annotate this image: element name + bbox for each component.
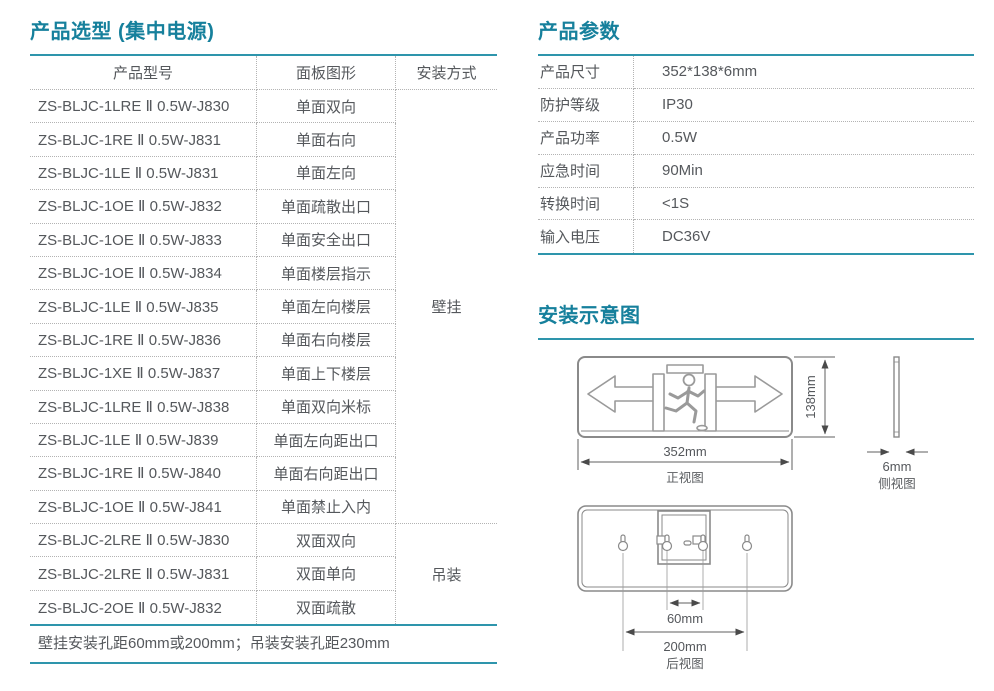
model-cell: ZS-BLJC-1OE Ⅱ 0.5W-J841 [30, 491, 257, 524]
side-view-drawing [867, 357, 928, 452]
model-cell: ZS-BLJC-1OE Ⅱ 0.5W-J833 [30, 224, 257, 257]
front-view-label: 正视图 [666, 470, 704, 485]
panel-cell: 单面禁止入内 [257, 491, 396, 524]
model-cell: ZS-BLJC-2LRE Ⅱ 0.5W-J831 [30, 557, 257, 590]
mount-cell: 壁挂 [396, 90, 497, 524]
panel-cell: 单面右向 [257, 123, 396, 156]
datasheet-page: 产品选型 (集中电源) 产品型号 面板图形 安装方式 ZS-BLJC-1LRE … [0, 0, 994, 687]
product-selection-section: 产品选型 (集中电源) 产品型号 面板图形 安装方式 ZS-BLJC-1LRE … [30, 20, 497, 664]
model-cell: ZS-BLJC-1LE Ⅱ 0.5W-J831 [30, 157, 257, 190]
model-cell: ZS-BLJC-1RE Ⅱ 0.5W-J831 [30, 123, 257, 156]
model-cell: ZS-BLJC-1LRE Ⅱ 0.5W-J838 [30, 391, 257, 424]
right-column: 产品参数 产品尺寸352*138*6mm防护等级IP30产品功率0.5W应急时间… [538, 20, 974, 691]
front-view-drawing [578, 357, 792, 437]
rear-view-label: 后视图 [666, 656, 704, 671]
panel-cell: 双面单向 [257, 557, 396, 590]
model-cell: ZS-BLJC-1LE Ⅱ 0.5W-J839 [30, 424, 257, 457]
mount-cell: 吊装 [396, 524, 497, 624]
model-cell: ZS-BLJC-2LRE Ⅱ 0.5W-J830 [30, 524, 257, 557]
selection-table: 产品型号 面板图形 安装方式 ZS-BLJC-1LRE Ⅱ 0.5W-J830单… [30, 56, 497, 624]
panel-cell: 单面右向距出口 [257, 457, 396, 490]
model-cell: ZS-BLJC-1OE Ⅱ 0.5W-J832 [30, 190, 257, 223]
parameters-title: 产品参数 [538, 20, 974, 45]
rear-outer-pitch-dim: 200mm [663, 639, 706, 654]
param-label: 防护等级 [538, 89, 634, 122]
param-value: DC36V [634, 220, 974, 253]
front-height-dim: 138mm [803, 376, 818, 419]
param-value: IP30 [634, 89, 974, 122]
panel-cell: 双面双向 [257, 524, 396, 557]
param-label: 产品尺寸 [538, 56, 634, 89]
rear-inner-pitch-dim: 60mm [667, 611, 703, 626]
model-cell: ZS-BLJC-1LRE Ⅱ 0.5W-J830 [30, 90, 257, 123]
param-value: <1S [634, 188, 974, 221]
selection-footnote: 壁挂安装孔距60mm或200mm；吊装安装孔距230mm [30, 624, 497, 664]
param-label: 输入电压 [538, 220, 634, 253]
param-value: 0.5W [634, 122, 974, 155]
column-header-mount: 安装方式 [396, 56, 497, 90]
panel-cell: 单面左向距出口 [257, 424, 396, 457]
param-label: 产品功率 [538, 122, 634, 155]
installation-title: 安装示意图 [538, 304, 974, 329]
parameters-table: 产品尺寸352*138*6mm防护等级IP30产品功率0.5W应急时间90Min… [538, 56, 974, 255]
panel-cell: 单面左向楼层 [257, 290, 396, 323]
rear-view-drawing [578, 506, 792, 651]
panel-cell: 单面右向楼层 [257, 324, 396, 357]
model-cell: ZS-BLJC-1XE Ⅱ 0.5W-J837 [30, 357, 257, 390]
param-value: 90Min [634, 155, 974, 188]
column-header-model: 产品型号 [30, 56, 257, 90]
panel-cell: 双面疏散 [257, 591, 396, 624]
side-view-label: 侧视图 [878, 476, 916, 491]
model-cell: ZS-BLJC-1LE Ⅱ 0.5W-J835 [30, 290, 257, 323]
selection-title: 产品选型 (集中电源) [30, 20, 497, 45]
param-label: 应急时间 [538, 155, 634, 188]
panel-cell: 单面楼层指示 [257, 257, 396, 290]
param-label: 转换时间 [538, 188, 634, 221]
model-cell: ZS-BLJC-2OE Ⅱ 0.5W-J832 [30, 591, 257, 624]
side-thickness-dim: 6mm [883, 459, 912, 474]
panel-cell: 单面安全出口 [257, 224, 396, 257]
panel-cell: 单面疏散出口 [257, 190, 396, 223]
model-cell: ZS-BLJC-1RE Ⅱ 0.5W-J836 [30, 324, 257, 357]
model-cell: ZS-BLJC-1OE Ⅱ 0.5W-J834 [30, 257, 257, 290]
panel-cell: 单面双向 [257, 90, 396, 123]
column-header-panel: 面板图形 [257, 56, 396, 90]
model-cell: ZS-BLJC-1RE Ⅱ 0.5W-J840 [30, 457, 257, 490]
panel-cell: 单面左向 [257, 157, 396, 190]
installation-diagram: 138mm 352mm 正视图 6mm 侧视图 [538, 340, 974, 691]
front-width-dim: 352mm [663, 444, 706, 459]
panel-cell: 单面双向米标 [257, 391, 396, 424]
param-value: 352*138*6mm [634, 56, 974, 89]
panel-cell: 单面上下楼层 [257, 357, 396, 390]
